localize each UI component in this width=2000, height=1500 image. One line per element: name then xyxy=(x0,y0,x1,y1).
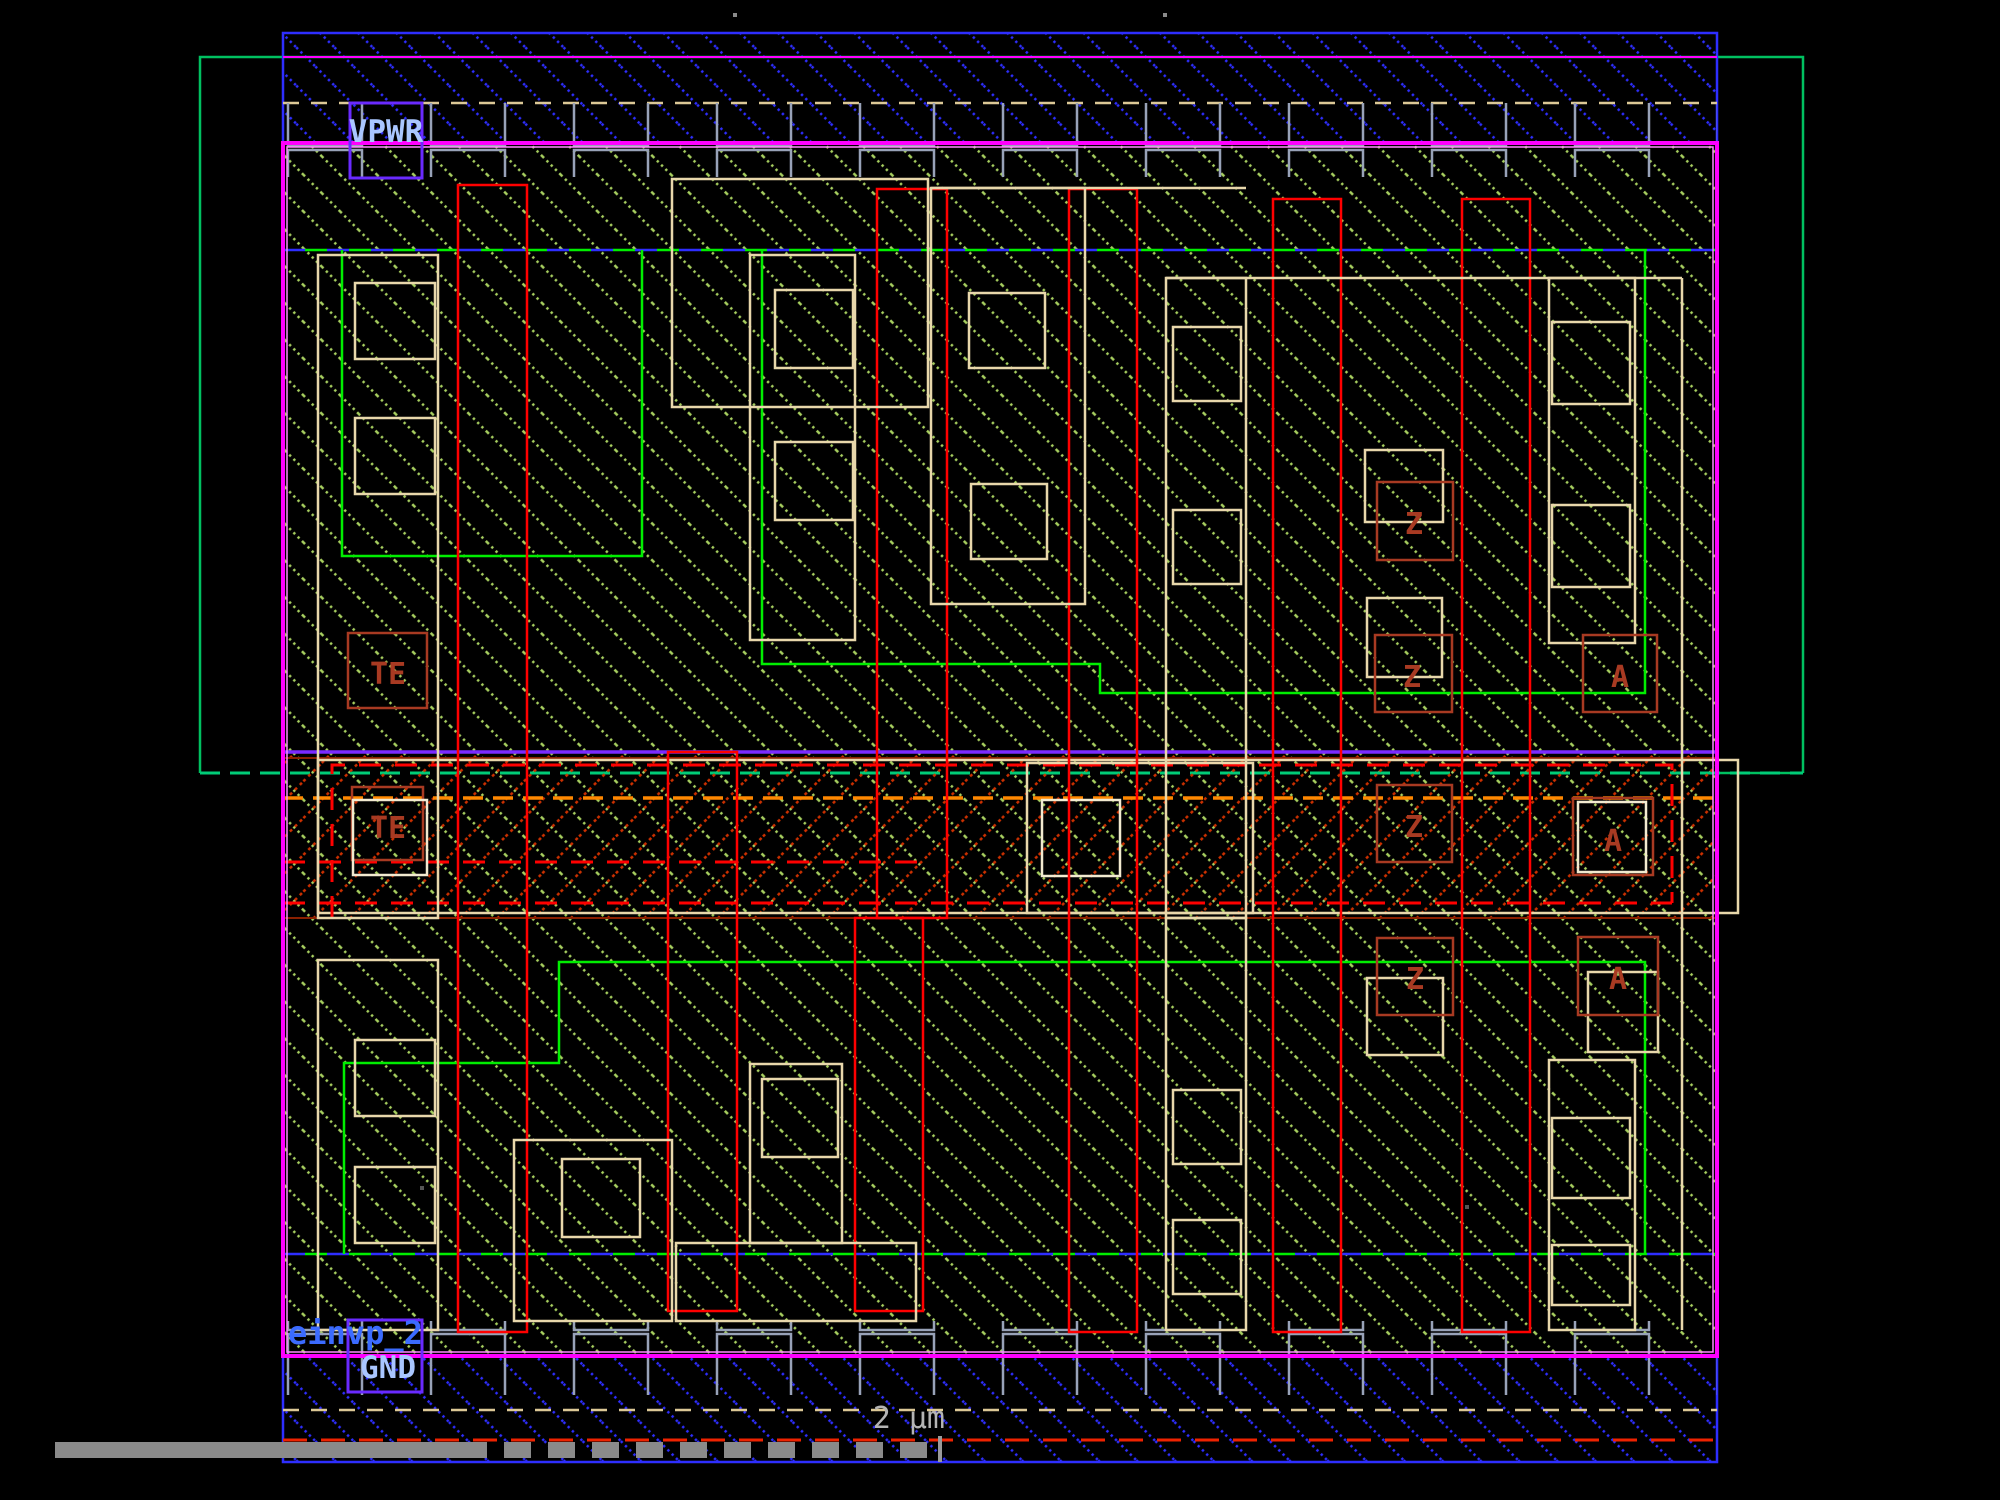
gnd-rail-metal1[interactable] xyxy=(283,1321,1717,1462)
scale-label: 2 µm xyxy=(873,1401,945,1436)
vpwr-rail-metal1[interactable] xyxy=(283,33,1717,177)
port-label-gnd: GND xyxy=(360,1350,416,1386)
port-label-vpwr: VPWR xyxy=(349,114,424,150)
layout-drawing: TE TE Z Z Z Z A A A VPWR GND einvp_2 2 µ… xyxy=(0,0,2000,1500)
pin-label-a: A xyxy=(1609,962,1627,997)
cell-area[interactable] xyxy=(283,143,1717,1356)
pin-label-te: TE xyxy=(370,657,406,692)
via-row-top xyxy=(283,103,1717,177)
pin-label-z: Z xyxy=(1403,660,1421,695)
scale-bar-solid xyxy=(55,1442,460,1458)
pin-label-z: Z xyxy=(1406,962,1424,997)
pin-label-z: Z xyxy=(1405,507,1423,542)
cell-name-label: einvp_2 xyxy=(288,1314,423,1352)
pin-label-z: Z xyxy=(1405,810,1423,845)
layout-viewer-canvas: TE TE Z Z Z Z A A A VPWR GND einvp_2 2 µ… xyxy=(0,0,2000,1500)
pin-label-a: A xyxy=(1604,824,1622,859)
pin-label-te: TE xyxy=(370,811,406,846)
substrate-tap-band[interactable] xyxy=(283,752,1738,918)
pin-label-a: A xyxy=(1611,660,1629,695)
